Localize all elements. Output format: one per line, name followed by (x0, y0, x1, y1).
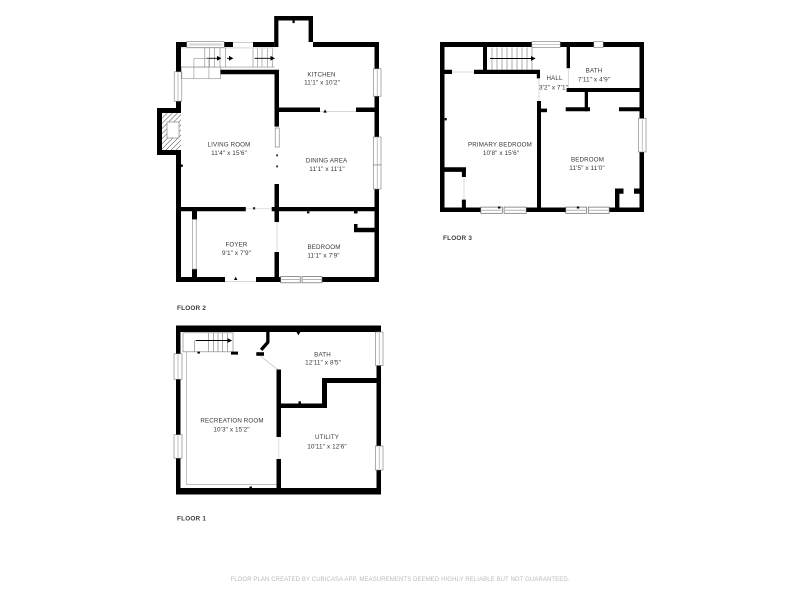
svg-text:FLOOR 2: FLOOR 2 (177, 305, 206, 312)
svg-text:PRIMARY BEDROOM: PRIMARY BEDROOM (468, 142, 532, 149)
svg-text:KITCHEN: KITCHEN (307, 71, 335, 78)
svg-text:9'1" x 7'9": 9'1" x 7'9" (222, 250, 251, 257)
svg-text:BATH: BATH (314, 352, 331, 359)
svg-text:FLOOR PLAN CREATED BY CUBICASA: FLOOR PLAN CREATED BY CUBICASA APP. MEAS… (230, 577, 569, 583)
svg-text:10'3" x 15'2": 10'3" x 15'2" (213, 427, 249, 434)
svg-text:DINING AREA: DINING AREA (306, 158, 348, 165)
svg-text:7'11" x 4'9": 7'11" x 4'9" (578, 77, 610, 84)
svg-text:12'11" x 8'5": 12'11" x 8'5" (305, 360, 341, 367)
svg-text:FOYER: FOYER (225, 242, 247, 249)
svg-text:11'1" x 11'1": 11'1" x 11'1" (309, 166, 344, 173)
svg-text:FLOOR 1: FLOOR 1 (177, 516, 206, 523)
svg-text:10'11" x 12'6": 10'11" x 12'6" (307, 444, 347, 451)
svg-text:UTILITY: UTILITY (315, 434, 339, 441)
svg-text:11'1" x 10'2": 11'1" x 10'2" (304, 79, 340, 86)
svg-text:BATH: BATH (586, 68, 603, 75)
svg-text:11'1" x 7'9": 11'1" x 7'9" (307, 253, 339, 260)
svg-text:BEDROOM: BEDROOM (307, 244, 340, 251)
svg-text:10'8" x 15'6": 10'8" x 15'6" (483, 150, 519, 157)
svg-text:11'5" x 11'0": 11'5" x 11'0" (569, 165, 604, 172)
svg-text:3'2" x 7'1": 3'2" x 7'1" (539, 85, 568, 92)
svg-text:RECREATION ROOM: RECREATION ROOM (200, 418, 263, 425)
svg-text:11'4" x 15'6": 11'4" x 15'6" (211, 150, 247, 157)
svg-text:LIVING ROOM: LIVING ROOM (208, 142, 251, 149)
svg-text:HALL: HALL (546, 75, 562, 82)
svg-text:FLOOR 3: FLOOR 3 (443, 235, 472, 242)
svg-text:BEDROOM: BEDROOM (571, 157, 604, 164)
